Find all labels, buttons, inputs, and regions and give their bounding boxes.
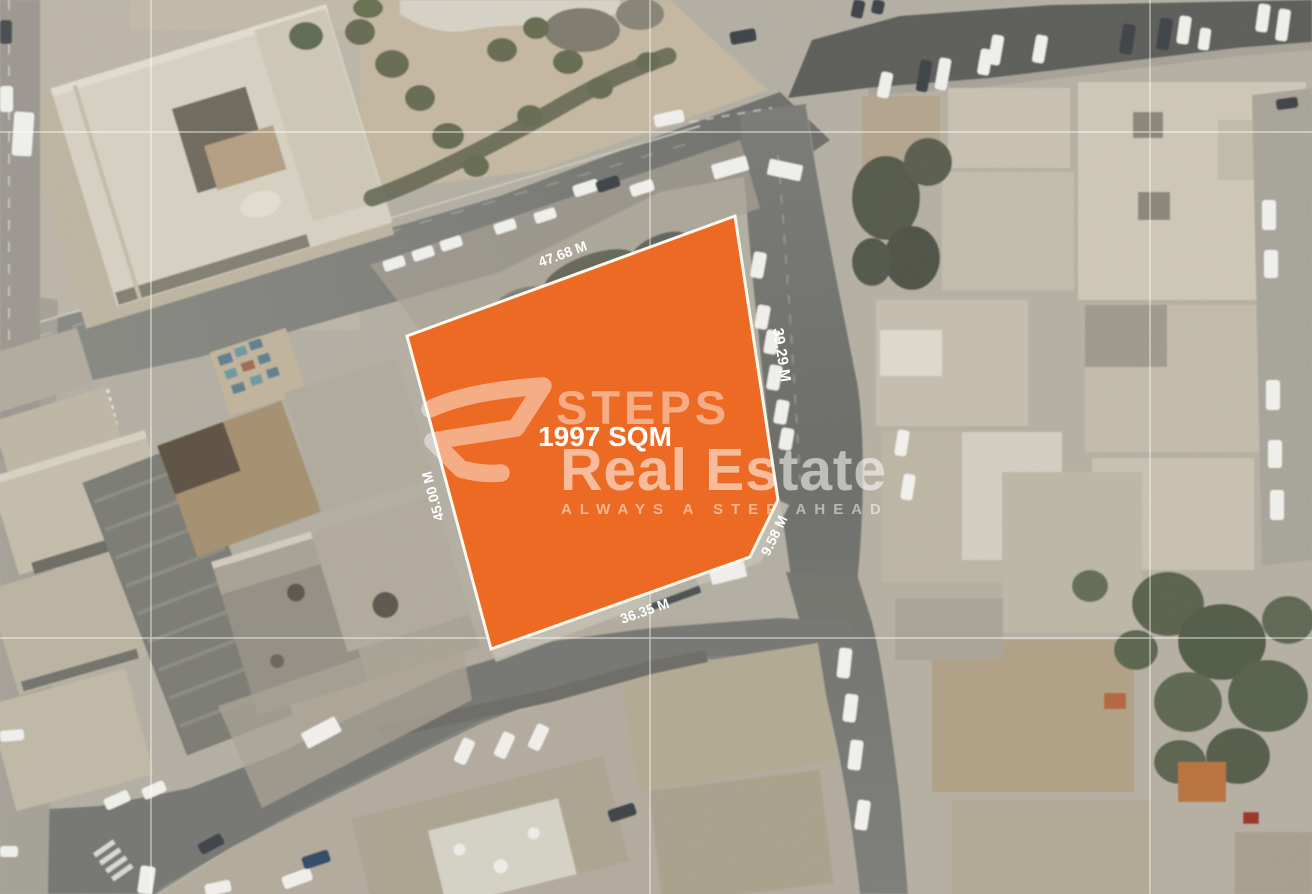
svg-text:1997 SQM: 1997 SQM: [538, 421, 672, 452]
svg-text:ALWAYS A STEP AHEAD: ALWAYS A STEP AHEAD: [561, 501, 889, 518]
